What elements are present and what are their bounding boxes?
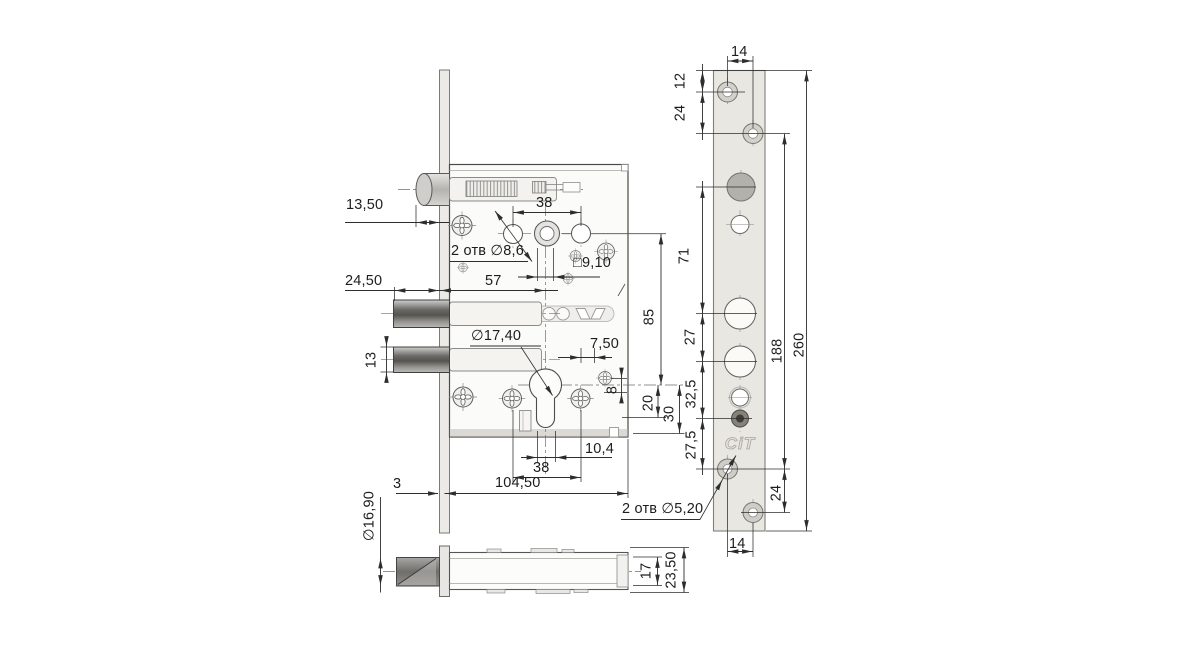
- dim-plate-71: 71: [677, 248, 692, 265]
- side-view: [383, 546, 641, 597]
- faceplate-view: [714, 71, 766, 532]
- dim-offset-8: 8: [605, 386, 620, 394]
- dim-plate-188: 188: [770, 339, 785, 364]
- dim-plate-12: 12: [673, 73, 688, 90]
- dim-offset-7-5: 7,50: [590, 337, 619, 352]
- dim-bolt-protrusion: 24,50: [345, 274, 382, 289]
- note-holes-8-6: 2 отв ∅8,6: [451, 244, 524, 259]
- dim-plate-24-bottom: 24: [769, 485, 784, 502]
- dim-cyl-to-case: 30: [662, 406, 677, 423]
- dim-cylinder-hole-dia: ∅17,40: [471, 329, 521, 344]
- brand-logo: CiT: [725, 434, 755, 454]
- dim-spindle-square: □9,10: [573, 256, 611, 271]
- dim-top-hole-span: 38: [536, 196, 553, 211]
- dim-plate-bottom-spacing: 14: [729, 537, 746, 552]
- dim-plate-32-5: 32,5: [684, 379, 699, 408]
- dim-latch-dia: ∅16,90: [362, 491, 377, 541]
- dim-plate-27: 27: [683, 329, 698, 346]
- dim-overall-height: 23,50: [664, 551, 679, 588]
- dim-case-length: 104,50: [495, 476, 541, 491]
- dim-body-height: 17: [639, 563, 654, 580]
- note-holes-5-20: 2 отв ∅5,20: [622, 502, 703, 517]
- dim-plate-27-5: 27,5: [684, 430, 699, 459]
- technical-drawing-mortise-lock: 13,50 38 2 отв ∅8,6 □9,10 24,50 57 ∅17,4…: [0, 0, 1201, 645]
- dim-bolt-height: 13: [364, 352, 379, 369]
- dim-slot-width: 10,4: [585, 442, 614, 457]
- drawing-canvas: [0, 0, 1201, 645]
- dim-hub-to-cylinder: 85: [642, 309, 657, 326]
- dim-bottom-hole-span: 38: [533, 461, 550, 476]
- dim-faceplate-thickness: 3: [393, 477, 401, 492]
- dim-latch-protrusion: 13,50: [346, 198, 383, 213]
- dim-cyl-to-slot: 20: [641, 395, 656, 412]
- dim-plate-260: 260: [792, 333, 807, 358]
- dim-plate-24: 24: [673, 105, 688, 122]
- dim-plate-top-spacing: 14: [731, 45, 748, 60]
- dim-backset: 57: [485, 274, 502, 289]
